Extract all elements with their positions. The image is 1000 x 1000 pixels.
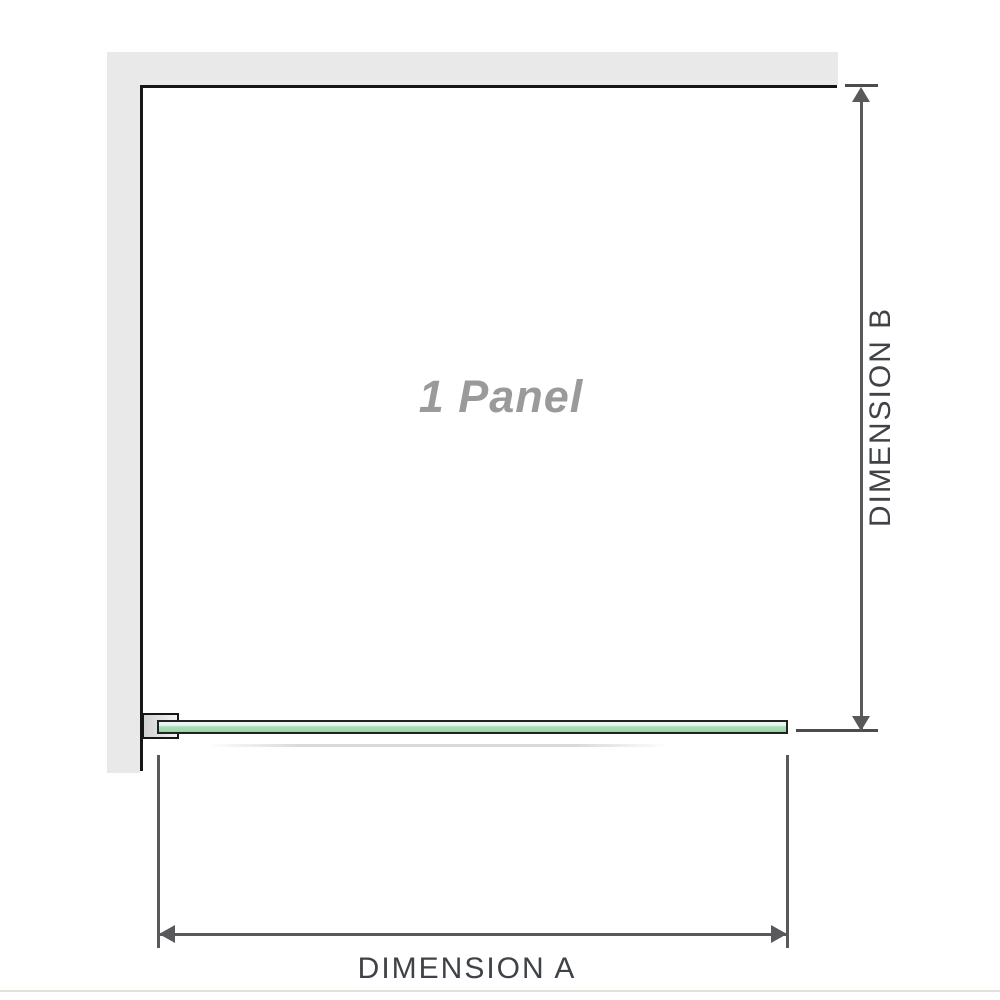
dimension-a-line	[160, 933, 787, 936]
wall-top-band	[107, 52, 838, 85]
arrow-up-icon	[852, 87, 870, 102]
dimension-b-line	[860, 90, 863, 730]
dimension-a-extension-right	[786, 755, 789, 948]
bottom-divider	[0, 990, 1000, 992]
dimension-b-label: DIMENSION B	[864, 307, 898, 527]
wall-left-band	[107, 52, 140, 773]
arrow-right-icon	[771, 925, 787, 943]
panel-outline-top	[140, 85, 837, 88]
glass-panel-shadow	[205, 744, 670, 747]
dimension-a-extension-left	[157, 755, 160, 948]
panel-count-label: 1 Panel	[419, 371, 584, 423]
arrow-down-icon	[852, 716, 870, 731]
panel-dimension-diagram: 1 Panel DIMENSION B DIMENSION A	[0, 0, 1000, 1000]
arrow-left-icon	[159, 925, 175, 943]
dimension-a-label: DIMENSION A	[358, 952, 577, 986]
panel-outline-left	[140, 85, 143, 771]
glass-panel-bar	[157, 720, 788, 734]
